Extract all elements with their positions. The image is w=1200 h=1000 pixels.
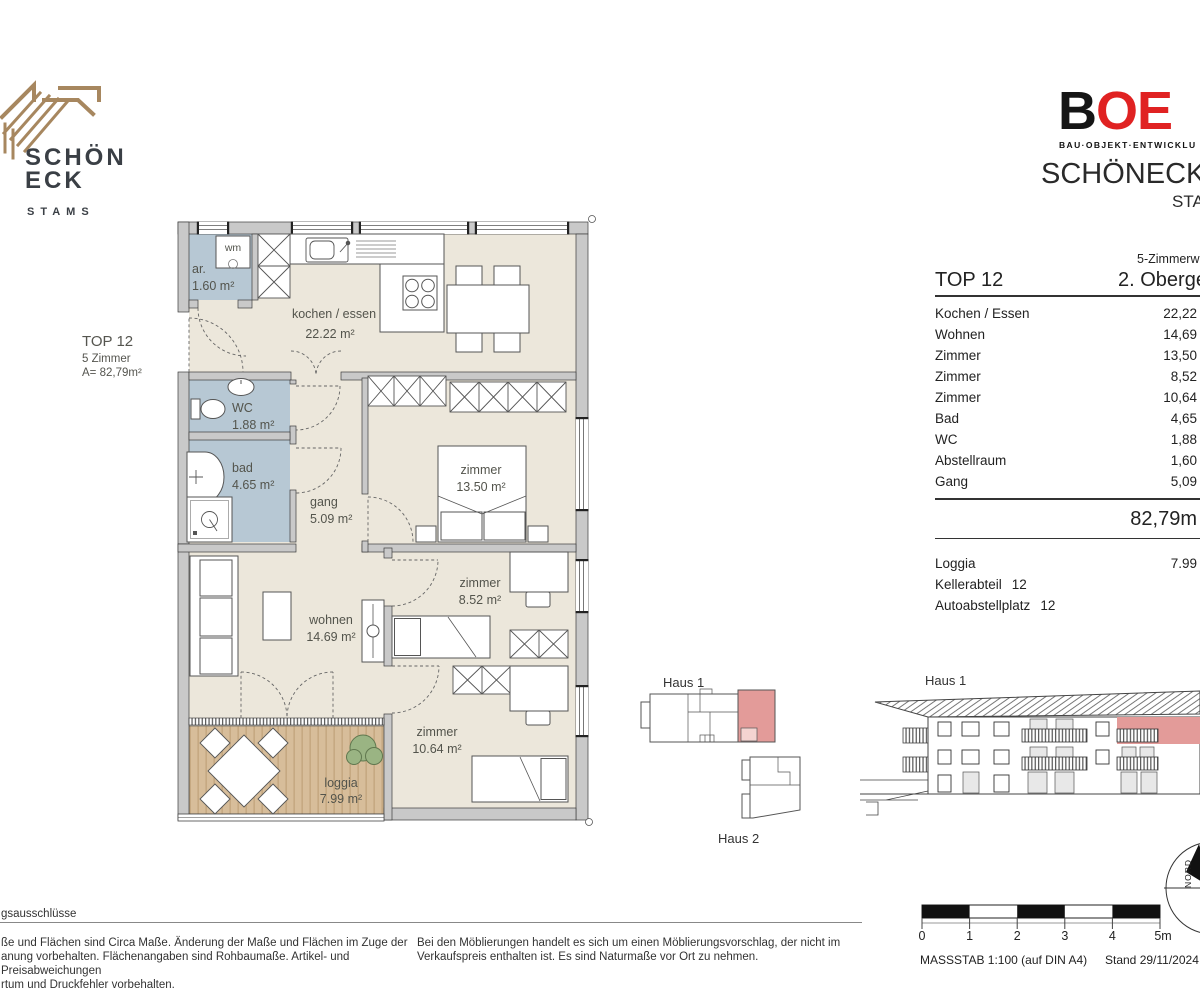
scale-tick-2: 2	[1014, 929, 1021, 943]
label-wm: wm	[224, 242, 242, 254]
tall-cupboard	[258, 234, 290, 298]
row-label: WC	[935, 429, 958, 450]
unit-type-header: 5-Zimmerw	[1137, 252, 1200, 266]
kitchen-sink	[306, 238, 350, 262]
row-value: 8,52	[1171, 366, 1197, 387]
schoeneck-logo: SCHÖN ECK	[25, 146, 127, 192]
site-loggia-highlight	[741, 728, 757, 741]
table-row: Bad4,65	[935, 408, 1200, 429]
boe-letter-o: O	[1096, 81, 1137, 141]
row-label: Zimmer	[935, 387, 981, 408]
table-row: Zimmer13,50	[935, 345, 1200, 366]
windows-right	[576, 417, 589, 737]
single-bed-852	[392, 616, 490, 658]
row-value: 14,69	[1163, 324, 1197, 345]
table-header-rule	[935, 295, 1200, 297]
row-label: Bad	[935, 408, 959, 429]
total-area: 82,79m	[935, 500, 1200, 531]
disclaimer-left-line2: anung vorbehalten. Flächenangaben sind R…	[1, 950, 411, 978]
footer-rule	[0, 922, 862, 923]
table-row: Wohnen14,69	[935, 324, 1200, 345]
scale-tick-5: 5m	[1154, 929, 1171, 943]
project-location: STA	[1172, 192, 1200, 212]
extras-row-loggia: Loggia7.99	[935, 553, 1200, 574]
site-plan: Haus 1 Haus 2	[641, 675, 800, 846]
scale-tick-1: 1	[966, 929, 973, 943]
label-zimmer-13-area: 13.50 m²	[456, 480, 505, 494]
elevation-left-balconies	[903, 728, 928, 772]
row-value: 12	[1040, 598, 1055, 613]
table-row: Zimmer8,52	[935, 366, 1200, 387]
elevation-haus1-label: Haus 1	[925, 673, 966, 688]
extras-row-keller: Kellerabteil12	[935, 574, 1200, 595]
row-label: Kochen / Essen	[935, 303, 1030, 324]
unit-side-label-rooms: 5 Zimmer	[82, 353, 142, 365]
disclaimer-left-line1: ße und Flächen sind Circa Maße. Änderung…	[1, 936, 411, 950]
survey-marker	[586, 819, 593, 826]
row-value: 12	[1012, 577, 1027, 592]
label-zimmer-1064: zimmer	[417, 725, 458, 739]
schoeneck-logo-line2: ECK	[25, 169, 127, 192]
row-label: Zimmer	[935, 366, 981, 387]
wardrobe-1064	[453, 666, 511, 694]
site-haus1-label: Haus 1	[663, 675, 704, 690]
label-gang-area: 5.09 m²	[310, 512, 352, 526]
disclaimer-center: Bei den Möblierungen handelt es sich um …	[417, 936, 872, 964]
label-ar: ar.	[192, 262, 206, 276]
row-value: 1,60	[1171, 450, 1197, 471]
label-zimmer-852-area: 8.52 m²	[459, 593, 501, 607]
label-zimmer-13: zimmer	[461, 463, 502, 477]
scale-tick-3: 3	[1061, 929, 1068, 943]
row-label: Gang	[935, 471, 968, 492]
toilet-icon	[191, 399, 225, 419]
single-bed-1064	[472, 756, 568, 802]
plan-sheet: { "branding": { "schoeneck": {"line1": "…	[0, 0, 1200, 1000]
unit-side-label-top: TOP 12	[82, 333, 142, 350]
scale-label: MASSSTAB 1:100 (auf DIN A4)	[920, 953, 1087, 967]
extras: Loggia7.99 Kellerabteil12 Autoabstellpla…	[935, 539, 1200, 616]
date-label: Stand 29/11/2024	[1105, 953, 1199, 967]
table-row: Abstellraum1,60	[935, 450, 1200, 471]
table-row: Zimmer10,64	[935, 387, 1200, 408]
unit-table-unit: TOP 12	[935, 269, 1003, 292]
label-wc: WC	[232, 401, 253, 415]
site-haus2-label: Haus 2	[718, 831, 759, 846]
loggia-glass-front	[189, 718, 384, 725]
label-wc-area: 1.88 m²	[232, 418, 274, 432]
project-title: SCHÖNECK 2	[1041, 158, 1200, 191]
label-bad: bad	[232, 461, 253, 475]
elevation-roof	[875, 691, 1200, 717]
table-row: Gang5,09	[935, 471, 1200, 492]
row-label: Loggia	[935, 553, 976, 574]
boe-letter-e: E	[1137, 81, 1172, 141]
wc-sink-icon	[228, 379, 254, 396]
loggia-balcony-edge	[178, 814, 384, 821]
label-kochen: kochen / essen	[292, 307, 376, 321]
row-value: 7.99	[1171, 553, 1197, 574]
row-label: Autoabstellplatz	[935, 598, 1030, 613]
table-row: Kochen / Essen22,22	[935, 303, 1200, 324]
row-label: Kellerabteil	[935, 577, 1002, 592]
north-label: NORD	[1183, 859, 1193, 888]
row-label: Zimmer	[935, 345, 981, 366]
unit-table-floor: 2. Oberge	[1118, 269, 1200, 292]
label-zimmer-852: zimmer	[460, 576, 501, 590]
extras-row-auto: Autoabstellplatz12	[935, 595, 1200, 616]
label-wohnen-area: 14.69 m²	[306, 630, 355, 644]
row-value: 4,65	[1171, 408, 1197, 429]
survey-marker	[589, 216, 596, 223]
bath-sink-icon	[187, 452, 224, 502]
exclusions-header: gsausschlüsse	[1, 908, 76, 920]
row-label: Wohnen	[935, 324, 985, 345]
scale-tick-0: 0	[919, 929, 926, 943]
row-label: Abstellraum	[935, 450, 1006, 471]
schoeneck-logo-location: STAMS	[27, 206, 95, 218]
boe-letter-b: B	[1058, 81, 1096, 141]
row-value: 1,88	[1171, 429, 1197, 450]
elevation: Haus 1	[860, 673, 1200, 815]
floor-plan: ar. 1.60 m² kochen / essen 22.22 m² WC 1…	[178, 216, 596, 826]
boe-logo: BOE	[1058, 86, 1172, 136]
site-haus2	[742, 757, 800, 818]
coffee-table	[263, 592, 291, 640]
label-bad-area: 4.65 m²	[232, 478, 274, 492]
row-value: 22,22	[1163, 303, 1197, 324]
shower-icon	[187, 497, 232, 542]
row-value: 13,50	[1163, 345, 1197, 366]
disclaimer-left-line3: rtum und Druckfehler vorbehalten.	[1, 978, 411, 992]
sofa	[190, 556, 238, 676]
wardrobe-852	[510, 630, 568, 658]
label-gang: gang	[310, 495, 338, 509]
boe-tagline: BAU·OBJEKT·ENTWICKLU	[1059, 140, 1197, 150]
area-table: Kochen / Essen22,22 Wohnen14,69 Zimmer13…	[935, 303, 1200, 616]
label-wohnen: wohnen	[308, 613, 353, 627]
label-zimmer-1064-area: 10.64 m²	[412, 742, 461, 756]
schoeneck-logo-line1: SCHÖN	[25, 146, 127, 169]
loggia-furniture	[200, 728, 288, 814]
north-compass-icon: NORD	[1164, 842, 1200, 934]
scale-bar: 0 1 2 3 4 5m MASSSTAB 1:100 (auf DIN A4)…	[919, 905, 1200, 967]
elevation-left-structure	[860, 780, 928, 815]
label-ar-area: 1.60 m²	[192, 279, 234, 293]
stove-icon	[403, 276, 437, 310]
label-loggia-area: 7.99 m²	[320, 792, 362, 806]
table-row: WC1,88	[935, 429, 1200, 450]
scale-tick-4: 4	[1109, 929, 1116, 943]
unit-side-label: TOP 12 5 Zimmer A= 82,79m²	[82, 333, 142, 379]
unit-side-label-area: A= 82,79m²	[82, 367, 142, 379]
label-loggia: loggia	[324, 776, 357, 790]
row-value: 10,64	[1163, 387, 1197, 408]
sideboard	[362, 600, 384, 662]
disclaimer-left: ße und Flächen sind Circa Maße. Änderung…	[1, 936, 411, 992]
row-value: 5,09	[1171, 471, 1197, 492]
label-kochen-area: 22.22 m²	[305, 327, 354, 341]
